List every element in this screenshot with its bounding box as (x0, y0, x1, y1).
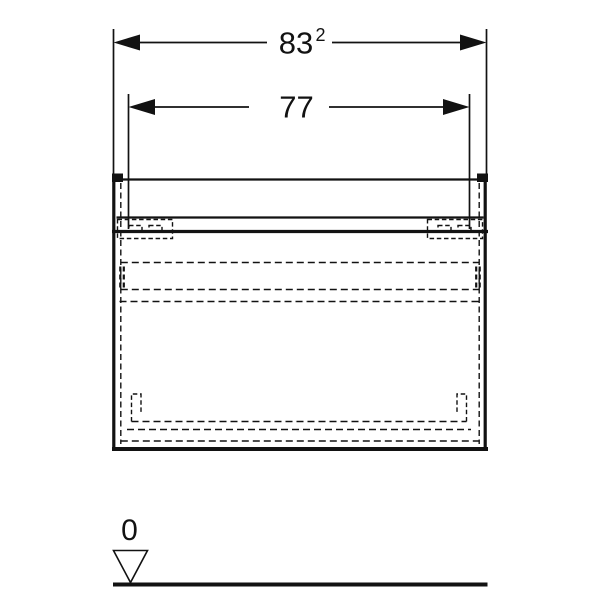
cabinet-front-view (112, 174, 488, 451)
dimension-arrow-left-icon (114, 35, 141, 51)
datum-triangle-icon (114, 551, 148, 583)
bottom-clip-right (457, 394, 467, 422)
drawer-rail-bracket-left (118, 220, 173, 239)
cabinet-hidden-details (118, 183, 483, 444)
floor-datum: 0 (113, 514, 488, 585)
dimension-arrow-right-icon (443, 99, 470, 115)
overall-width-superscript: 2 (316, 25, 326, 45)
technical-drawing-canvas: 83 2 77 (0, 0, 600, 600)
cabinet-dimension-drawing: 83 2 77 (0, 0, 600, 600)
dimension-arrow-left-icon (129, 99, 156, 115)
drawer-width-value: 77 (279, 90, 313, 125)
datum-level-value: 0 (121, 514, 138, 547)
overall-width-value: 83 (279, 26, 313, 61)
bottom-clip-left (132, 394, 142, 422)
drawer-rail-bracket-right (428, 220, 483, 239)
drawer-width-dimension: 77 (129, 90, 470, 230)
dimension-arrow-right-icon (460, 35, 487, 51)
